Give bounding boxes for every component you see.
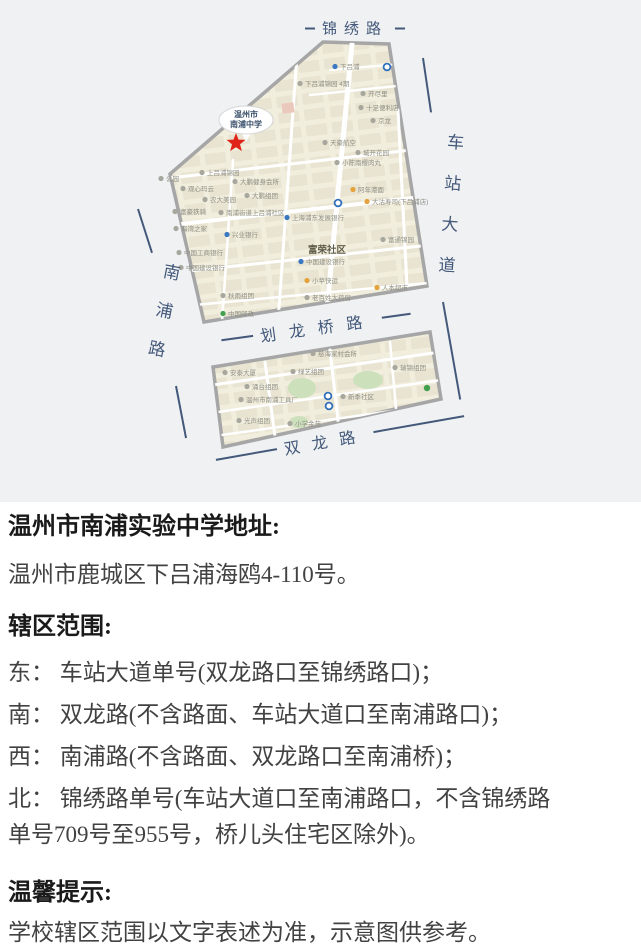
poi-dot-icon bbox=[298, 259, 303, 264]
poi-label: 十足便利店 bbox=[366, 103, 399, 112]
metro-icon bbox=[335, 200, 342, 207]
poi-dot-icon bbox=[220, 311, 225, 316]
address-heading: 温州市南浦实验中学地址: bbox=[8, 512, 633, 542]
poi-dot-icon bbox=[158, 176, 163, 181]
poi-dot-icon bbox=[202, 197, 207, 202]
poi-label: 中国邮政 bbox=[228, 309, 255, 318]
map-poi: 小陈南樱肉丸 bbox=[334, 158, 381, 167]
poi-dot-icon bbox=[244, 384, 249, 389]
poi-dot-icon bbox=[358, 105, 363, 110]
poi-label: 小陈南樱肉丸 bbox=[342, 158, 382, 167]
poi-label: 下吕浦 bbox=[340, 62, 360, 71]
poi-dot-icon bbox=[297, 81, 302, 86]
dash-icon bbox=[216, 448, 277, 461]
map-poi: 慈海家村会所 bbox=[310, 349, 357, 358]
poi-dot-icon bbox=[224, 232, 229, 237]
metro-icon bbox=[325, 393, 332, 400]
poi-label: 公园 bbox=[166, 175, 179, 183]
dash-icon bbox=[305, 27, 315, 29]
school-bubble-line1: 温州市 bbox=[234, 109, 258, 119]
poi-label: 天豪航空 bbox=[330, 138, 357, 147]
poi-dot-icon bbox=[290, 369, 295, 374]
page: 下吕浦下吕浦锦园 4期开尽里十足便利店京龙天豪航空城开花园小陈南樱肉丸公园上吕浦… bbox=[0, 0, 641, 952]
poi-label: 大沽寿司(下吕浦店) bbox=[372, 197, 428, 206]
poi-label: 中国工商银行 bbox=[184, 248, 224, 257]
district-map: 下吕浦下吕浦锦园 4期开尽里十足便利店京龙天豪航空城开花园小陈南樱肉丸公园上吕浦… bbox=[0, 0, 641, 502]
address-text: 温州市鹿城区下吕浦海鸥4-110号。 bbox=[8, 562, 633, 588]
poi-dot-icon bbox=[355, 150, 360, 155]
poi-dot-icon bbox=[236, 418, 241, 423]
poi-dot-icon bbox=[332, 64, 337, 69]
map-poi: 中国工商银行 bbox=[176, 248, 223, 257]
poi-dot-icon bbox=[334, 160, 339, 165]
metro-icon bbox=[326, 403, 333, 410]
poi-dot-icon bbox=[284, 215, 289, 220]
metro-icon bbox=[384, 64, 391, 71]
poi-dot-icon bbox=[244, 193, 249, 198]
pin-icon bbox=[424, 385, 430, 391]
scope-heading: 辖区范围: bbox=[8, 612, 633, 642]
poi-label: 农大美园 bbox=[210, 195, 236, 204]
scope-line-north: 北： 锦绣路单号(车站大道口至南浦路口，不含锦绣路 bbox=[8, 786, 633, 812]
poi-label: 阿年港面 bbox=[358, 185, 385, 194]
article: 温州市南浦实验中学地址: 温州市鹿城区下吕浦海鸥4-110号。 辖区范围: 东：… bbox=[0, 502, 641, 946]
map-poi: 大沽寿司(下吕浦店) bbox=[364, 197, 428, 206]
notice-heading: 温馨提示: bbox=[8, 878, 633, 908]
poi-label: 京龙 bbox=[378, 116, 392, 125]
poi-dot-icon bbox=[218, 210, 223, 215]
poi-label: 兴业银行 bbox=[232, 230, 259, 239]
poi-label: 观心玛云 bbox=[188, 185, 215, 193]
poi-label: 富豪铁骑 bbox=[180, 207, 207, 216]
road-label-jinxiu: 锦绣路 bbox=[305, 18, 405, 39]
poi-label: 慈海家村会所 bbox=[318, 349, 358, 358]
poi-label: 开尽里 bbox=[368, 90, 388, 98]
map-svg: 下吕浦下吕浦锦园 4期开尽里十足便利店京龙天豪航空城开花园小陈南樱肉丸公园上吕浦… bbox=[0, 0, 641, 502]
poi-dot-icon bbox=[364, 199, 369, 204]
poi-dot-icon bbox=[304, 295, 309, 300]
poi-dot-icon bbox=[340, 394, 345, 399]
dash-icon bbox=[382, 313, 411, 319]
poi-dot-icon bbox=[304, 278, 309, 283]
map-poi: 老百姓大药房 bbox=[304, 293, 351, 302]
poi-label: 城开花园 bbox=[363, 148, 389, 157]
dash-icon bbox=[373, 415, 464, 433]
poi-dot-icon bbox=[370, 118, 375, 123]
poi-dot-icon bbox=[172, 209, 177, 214]
poi-label: 海湾之家 bbox=[181, 224, 208, 233]
dash-icon bbox=[395, 27, 405, 29]
poi-label: 大鹏健身会所 bbox=[240, 177, 280, 186]
poi-label: 瑞锦组团 bbox=[400, 363, 426, 372]
dash-icon bbox=[221, 335, 253, 341]
poi-label: 人本超市 bbox=[382, 283, 409, 292]
map-poi: 下吕浦锦园 4期 bbox=[297, 79, 350, 88]
map-poi: 大鹏健身会所 bbox=[232, 177, 279, 186]
poi-label: 上海浦东发展银行 bbox=[292, 213, 345, 222]
map-poi: 海湾之家 bbox=[173, 224, 207, 233]
map-poi: 公园 bbox=[158, 175, 179, 183]
scope-line-north-cont: 单号709号至955号，桥儿头住宅区除外)。 bbox=[8, 822, 633, 848]
scope-line-south: 南： 双龙路(不含路面、车站大道口至南浦路口)； bbox=[8, 702, 633, 728]
poi-label: 小学金苑 bbox=[295, 419, 322, 428]
poi-label: 安泰大厦 bbox=[230, 368, 257, 377]
scope-line-east: 东： 车站大道单号(双龙路口至锦绣路口)； bbox=[8, 660, 633, 686]
road-label-jinxiu-text: 锦绣路 bbox=[322, 18, 388, 39]
poi-dot-icon bbox=[322, 140, 327, 145]
poi-label: 秋雨组团 bbox=[228, 291, 254, 300]
poi-dot-icon bbox=[360, 91, 365, 96]
poi-label: 上吕浦锦园 bbox=[207, 168, 240, 177]
poi-dot-icon bbox=[287, 421, 292, 426]
poi-dot-icon bbox=[238, 397, 243, 402]
school-bubble-line2: 南浦中学 bbox=[230, 119, 262, 129]
poi-label: 富通锦园 bbox=[388, 235, 414, 244]
poi-dot-icon bbox=[380, 237, 385, 242]
poi-label: 温州市南浦工具厂 bbox=[246, 395, 299, 404]
poi-label: 南浦街道上吕浦社区 bbox=[226, 208, 285, 217]
notice-text: 学校辖区范围以文字表述为准，示意图供参考。 bbox=[8, 920, 633, 946]
map-poi: 南浦街道上吕浦社区 bbox=[218, 208, 285, 217]
poi-dot-icon bbox=[310, 351, 315, 356]
map-poi: 温州市南浦工具厂 bbox=[238, 395, 298, 404]
map-poi: 上海浦东发展银行 bbox=[284, 213, 344, 222]
poi-dot-icon bbox=[350, 187, 355, 192]
poi-dot-icon bbox=[176, 250, 181, 255]
scope-line-west: 西： 南浦路(不含路面、双龙路口至南浦桥)； bbox=[8, 744, 633, 770]
poi-dot-icon bbox=[232, 179, 237, 184]
poi-dot-icon bbox=[220, 293, 225, 298]
poi-dot-icon bbox=[180, 186, 185, 191]
poi-label: 光声组团 bbox=[244, 416, 270, 425]
poi-label: 小苹快运 bbox=[312, 276, 339, 285]
poi-label: 新季社区 bbox=[348, 392, 375, 401]
map-block-accent bbox=[281, 102, 294, 113]
map-poi: 中国建设银行 bbox=[178, 263, 225, 272]
poi-dot-icon bbox=[173, 226, 178, 231]
poi-label: 绿艺组团 bbox=[298, 367, 324, 376]
community-label: 富荣社区 bbox=[308, 244, 347, 256]
poi-label: 老百姓大药房 bbox=[312, 293, 351, 302]
poi-dot-icon bbox=[374, 285, 379, 290]
map-poi: 中国建设银行 bbox=[298, 257, 345, 266]
poi-dot-icon bbox=[392, 365, 397, 370]
poi-label: 下吕浦锦园 4期 bbox=[305, 79, 350, 88]
poi-dot-icon bbox=[222, 370, 227, 375]
poi-label: 中国建设银行 bbox=[186, 263, 226, 272]
poi-label: 中国建设银行 bbox=[306, 257, 346, 266]
poi-dot-icon bbox=[199, 170, 204, 175]
poi-label: 大鹏组团 bbox=[252, 191, 278, 200]
poi-label: 涌台组团 bbox=[252, 382, 278, 391]
